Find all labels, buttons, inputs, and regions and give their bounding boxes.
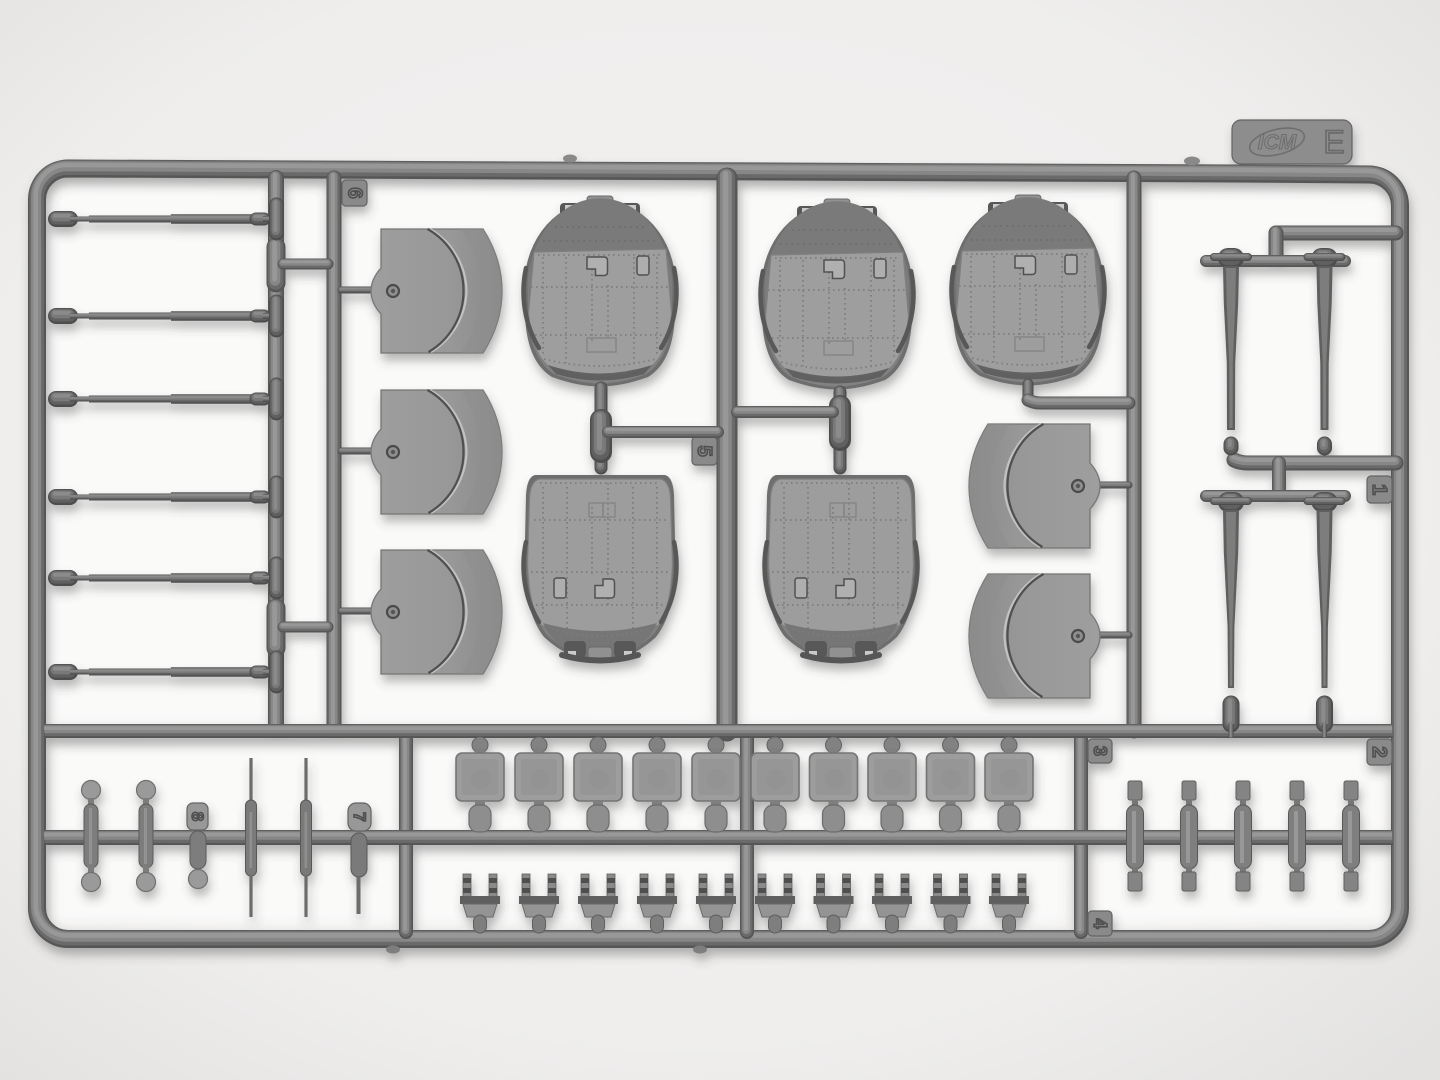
svg-text:ICM: ICM: [1258, 131, 1297, 154]
svg-text:6: 6: [344, 187, 366, 198]
svg-text:8: 8: [188, 812, 207, 821]
svg-text:5: 5: [693, 445, 715, 456]
svg-text:4: 4: [1090, 918, 1110, 928]
svg-text:7: 7: [350, 812, 369, 821]
svg-text:1: 1: [1368, 484, 1390, 495]
svg-text:E: E: [1323, 124, 1344, 160]
svg-text:2: 2: [1368, 746, 1390, 757]
svg-text:3: 3: [1090, 746, 1110, 756]
